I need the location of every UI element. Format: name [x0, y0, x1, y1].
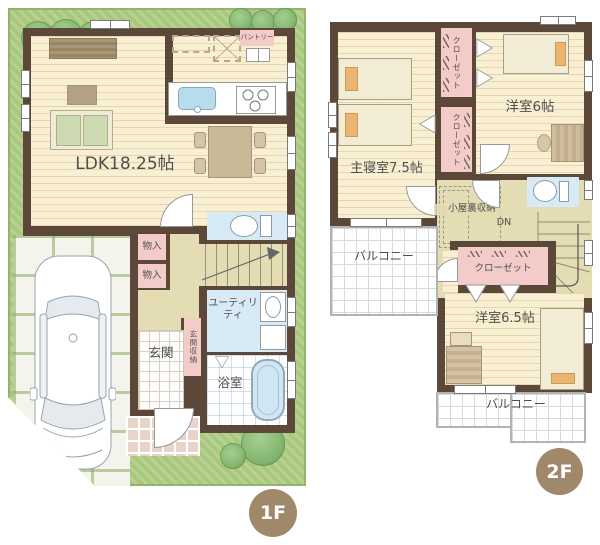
- toilet-icon: [533, 180, 557, 202]
- door-leaf-icon: [212, 356, 232, 369]
- window: [287, 214, 296, 238]
- desk-hutch: [450, 332, 472, 346]
- bed: [540, 308, 584, 390]
- sofa-cushion: [56, 115, 81, 146]
- hanger-rail: [492, 251, 506, 257]
- tv-board: [67, 85, 97, 105]
- floor2-plan: 主寝室7.5帖 クローゼット クローゼット 洋室6帖: [322, 14, 594, 514]
- chest: [446, 346, 482, 384]
- closet-b-label: クローゼット: [452, 113, 461, 167]
- window: [584, 180, 593, 200]
- utility-label: ユーティリティ: [208, 298, 258, 321]
- pillow: [551, 373, 575, 384]
- desk: [551, 124, 584, 162]
- room-closet-b: クローゼット: [441, 107, 472, 172]
- room-storage-upper: 物入: [138, 234, 166, 260]
- room-storage-lower: 物入: [138, 264, 166, 288]
- window: [584, 60, 593, 92]
- closet-a-label: クローゼット: [452, 36, 461, 90]
- toilet-tank: [559, 181, 569, 202]
- rug: [49, 38, 117, 59]
- window: [287, 62, 296, 92]
- washing-machine: [260, 325, 286, 350]
- pillow: [345, 113, 358, 137]
- window: [90, 20, 130, 29]
- ldk-label: LDK18.25帖: [45, 155, 205, 175]
- hanger-rail: [464, 155, 470, 169]
- washbasin-bowl: [265, 296, 281, 318]
- balcony-south-label: バルコニー: [446, 398, 586, 412]
- bed: [503, 34, 569, 74]
- stove-icon: [236, 86, 276, 114]
- window: [584, 240, 593, 266]
- room6-label: 洋室6帖: [476, 100, 584, 116]
- balcony-door-window: [454, 385, 516, 394]
- room-pantry: パントリー: [240, 30, 274, 46]
- window: [287, 297, 296, 327]
- bathtub-inner: [257, 365, 279, 415]
- hanger-rail: [516, 251, 530, 257]
- floorplan-canvas: パントリー LDK18.25帖 UP 物入 物入: [0, 0, 600, 545]
- floor1-badge: 1F: [249, 489, 297, 537]
- room-closet-a: クローゼット: [441, 28, 472, 97]
- pillow: [555, 42, 566, 66]
- tree-icon: [220, 443, 246, 469]
- hallway: [138, 290, 170, 330]
- window: [328, 132, 337, 158]
- dining-chair: [194, 132, 206, 148]
- pillow: [345, 67, 358, 91]
- door-leaf-icon: [464, 283, 488, 305]
- balcony-door-window: [350, 218, 422, 227]
- stairs-arrow-icon: [194, 244, 287, 286]
- floor1-badge-label: 1F: [260, 502, 286, 524]
- floor2-badge-label: 2F: [546, 461, 572, 483]
- hanger-rail: [464, 135, 470, 149]
- window: [287, 361, 296, 399]
- stairs-dn-label: DN: [492, 218, 516, 229]
- floor1-plan: パントリー LDK18.25帖 UP 物入 物入: [8, 8, 306, 486]
- pantry-label: パントリー: [241, 34, 274, 41]
- refrigerator-space: [213, 35, 241, 62]
- sofa-cushion: [83, 115, 108, 146]
- cupboard-space: [172, 35, 210, 53]
- room-genkan-storage: 玄関収納: [181, 318, 204, 376]
- window: [21, 104, 30, 132]
- washbasin: [260, 292, 286, 322]
- wall: [165, 116, 287, 124]
- bed: [338, 104, 412, 146]
- genkan-storage-label: 玄関収納: [188, 330, 197, 364]
- genkan-label: 玄関: [138, 346, 184, 360]
- window: [287, 136, 296, 170]
- master-label: 主寝室7.5帖: [337, 162, 436, 177]
- storage-upper-label: 物入: [142, 242, 161, 253]
- room-genkan: [138, 330, 184, 410]
- bathtub: [251, 359, 285, 421]
- desk-chair: [537, 134, 551, 152]
- hanger-rail: [464, 113, 470, 127]
- door-leaf-icon: [498, 283, 522, 305]
- dining-table: [208, 126, 252, 178]
- hanger-rail: [443, 78, 449, 92]
- window: [328, 102, 337, 128]
- floor2-badge: 2F: [536, 448, 583, 495]
- dining-chair: [254, 132, 266, 148]
- room-closet-c: クローゼット: [458, 247, 548, 285]
- hanger-rail: [443, 56, 449, 70]
- bath-label: 浴室: [207, 376, 253, 390]
- dining-chair: [254, 158, 266, 174]
- storage-lower-label: 物入: [142, 271, 161, 282]
- balcony-master-label: バルコニー: [330, 250, 438, 264]
- hanger-rail: [468, 251, 482, 257]
- bed: [338, 58, 412, 100]
- pantry-door: [246, 48, 270, 62]
- window: [540, 16, 576, 25]
- hallway: [170, 234, 199, 330]
- sink-drain: [194, 106, 201, 113]
- closet-c-label: クローゼット: [458, 264, 548, 275]
- toilet-icon: [230, 215, 258, 237]
- door-leaf-icon: [418, 112, 436, 136]
- window: [21, 70, 30, 98]
- toilet-tank: [260, 215, 272, 237]
- attic-ladder: [443, 190, 469, 244]
- balcony-master: [330, 226, 438, 316]
- window: [584, 312, 593, 344]
- sofa: [50, 110, 113, 150]
- door-leaf-icon: [476, 36, 494, 60]
- hanger-rail: [443, 34, 449, 48]
- car-icon: [30, 250, 116, 475]
- door-leaf-icon: [476, 66, 494, 90]
